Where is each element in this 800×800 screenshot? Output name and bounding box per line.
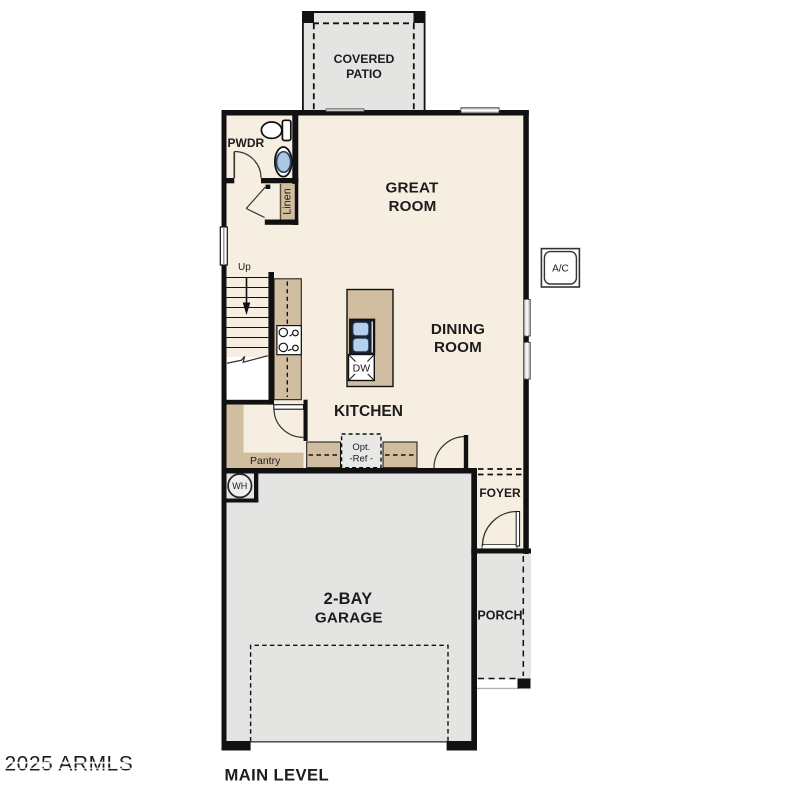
svg-text:PWDR: PWDR [228, 136, 265, 150]
svg-text:Up: Up [238, 262, 251, 273]
svg-text:GARAGE: GARAGE [315, 610, 383, 627]
svg-text:WH: WH [232, 481, 247, 491]
svg-text:FOYER: FOYER [479, 486, 521, 500]
svg-text:MAIN LEVEL: MAIN LEVEL [225, 766, 330, 785]
svg-text:2025 ARMLS: 2025 ARMLS [5, 753, 134, 776]
svg-text:KITCHEN: KITCHEN [334, 403, 403, 420]
svg-text:Opt.: Opt. [352, 442, 370, 453]
svg-text:A/C: A/C [552, 264, 569, 275]
svg-text:2-BAY: 2-BAY [324, 590, 373, 608]
svg-text:ROOM: ROOM [434, 339, 482, 356]
svg-text:ROOM: ROOM [388, 198, 436, 215]
svg-text:COVERED: COVERED [334, 52, 395, 66]
svg-text:PATIO: PATIO [346, 67, 382, 81]
svg-text:GREAT: GREAT [385, 180, 439, 197]
svg-text:DW: DW [353, 363, 371, 375]
svg-text:DINING: DINING [431, 321, 485, 338]
svg-text:-Ref -: -Ref - [349, 454, 373, 465]
svg-text:PORCH: PORCH [477, 609, 522, 623]
svg-text:Pantry: Pantry [250, 455, 281, 467]
svg-text:Linen: Linen [281, 188, 293, 214]
